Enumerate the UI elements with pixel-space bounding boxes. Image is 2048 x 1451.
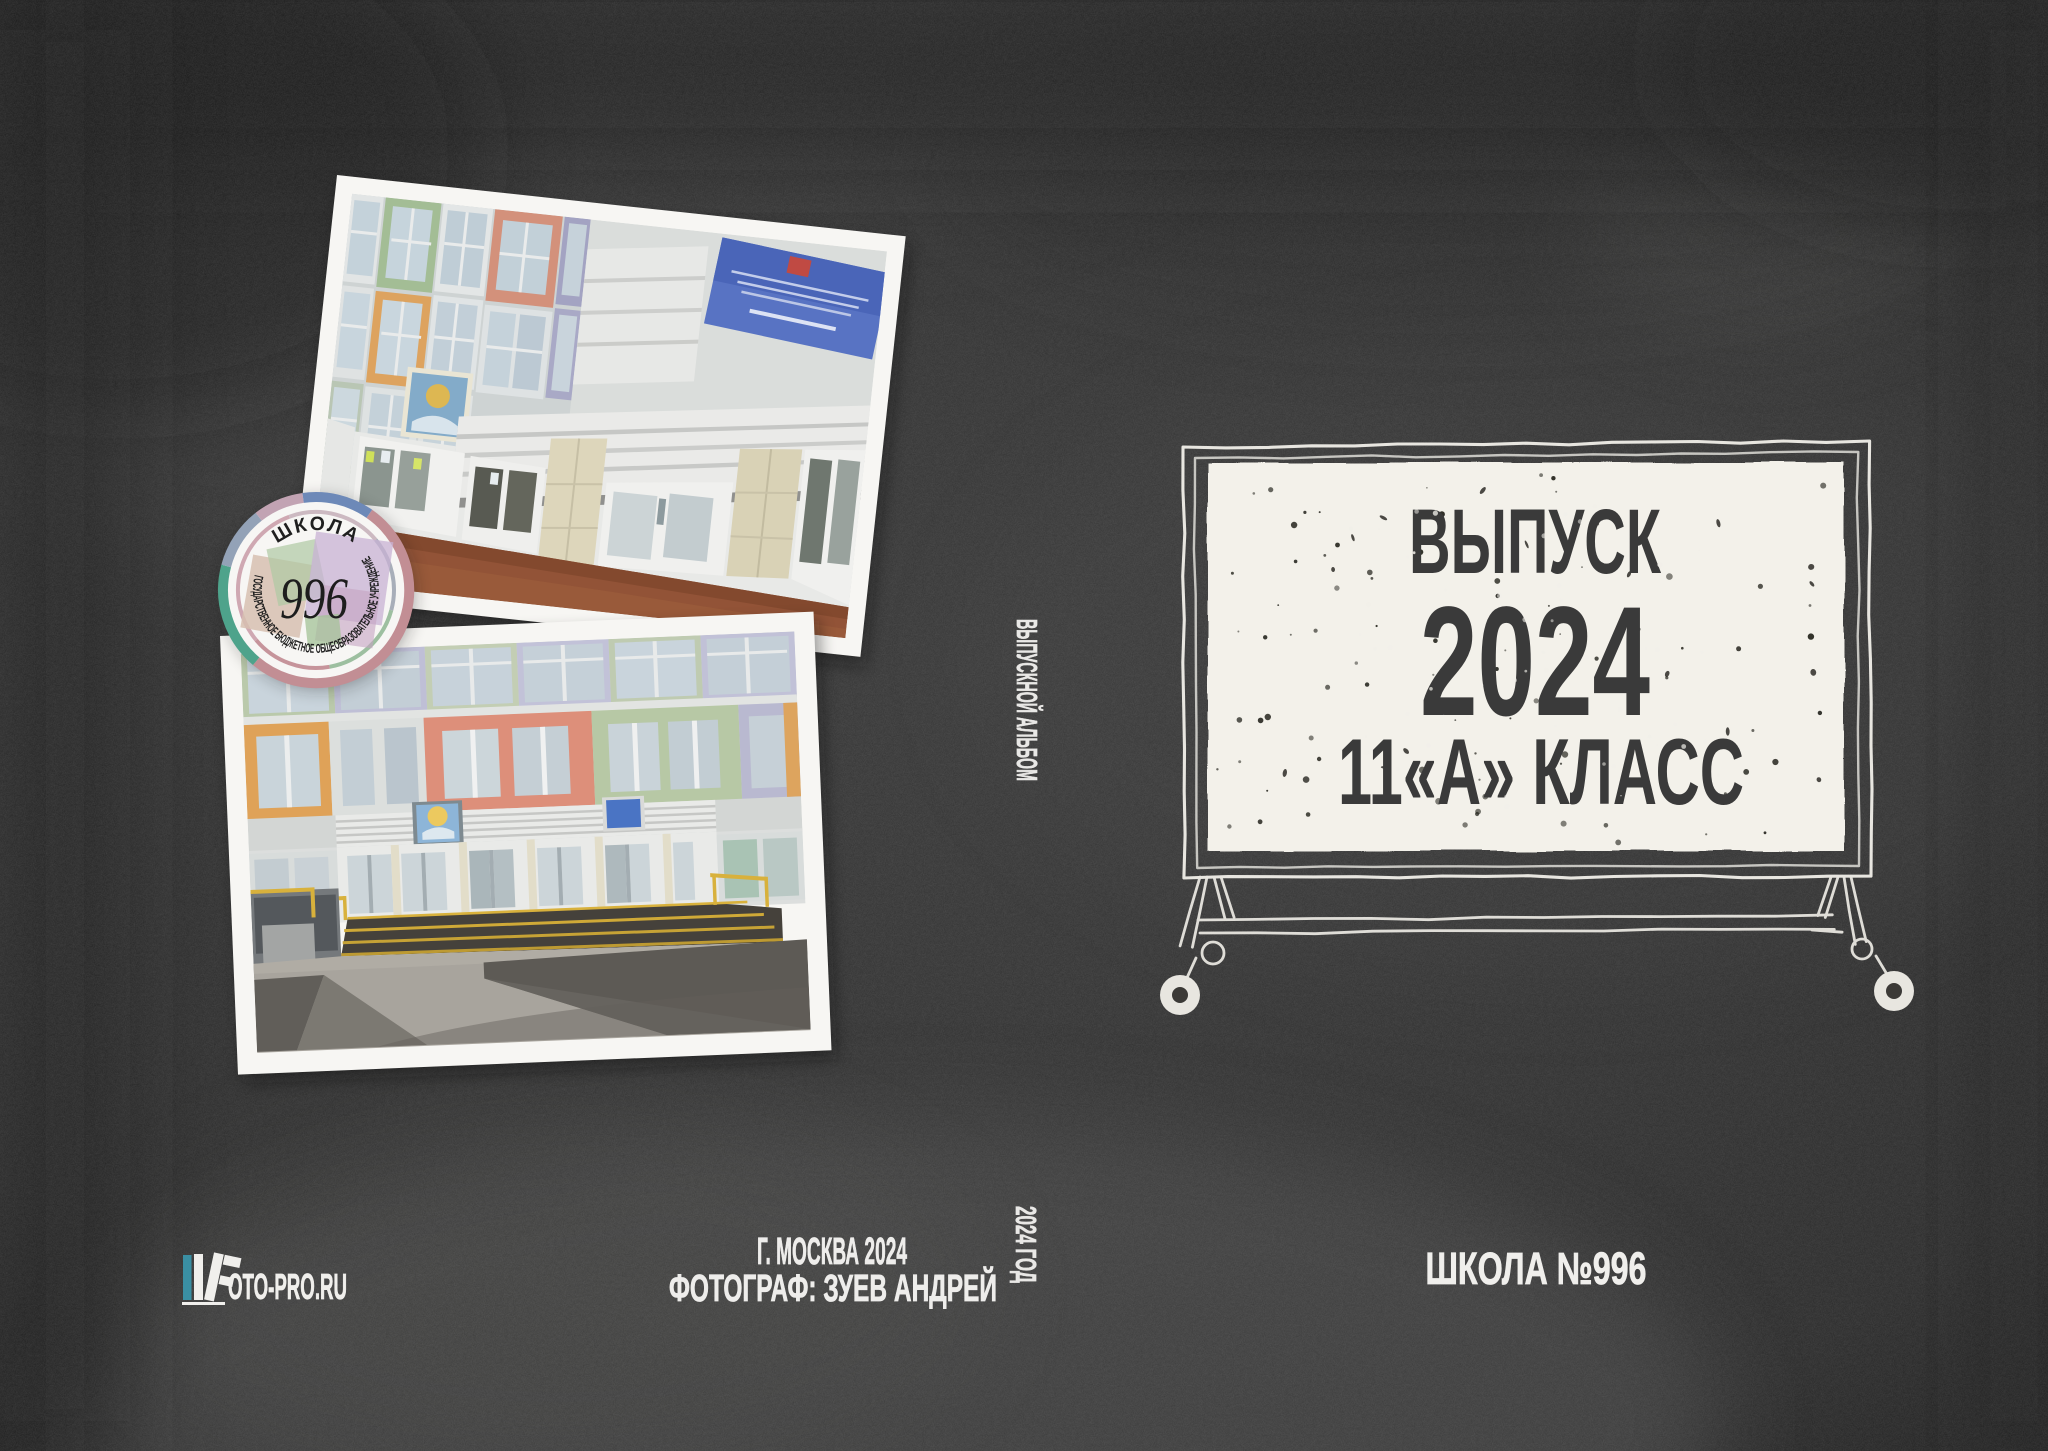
svg-text:11«А» КЛАСС: 11«А» КЛАСС (1338, 719, 1744, 824)
svg-text:Г. МОСКВА 2024: Г. МОСКВА 2024 (757, 1231, 907, 1273)
svg-text:ВЫПУСКНОЙ АЛЬБОМ: ВЫПУСКНОЙ АЛЬБОМ (1010, 619, 1044, 781)
svg-text:2024 ГОД: 2024 ГОД (1009, 1206, 1041, 1283)
svg-text:OTO-PRO.RU: OTO-PRO.RU (228, 1266, 347, 1307)
svg-text:ФОТОГРАФ: ЗУЕВ АНДРЕЙ: ФОТОГРАФ: ЗУЕВ АНДРЕЙ (669, 1265, 997, 1310)
svg-text:996: 996 (280, 566, 348, 631)
svg-text:ШКОЛА №996: ШКОЛА №996 (1426, 1243, 1647, 1294)
